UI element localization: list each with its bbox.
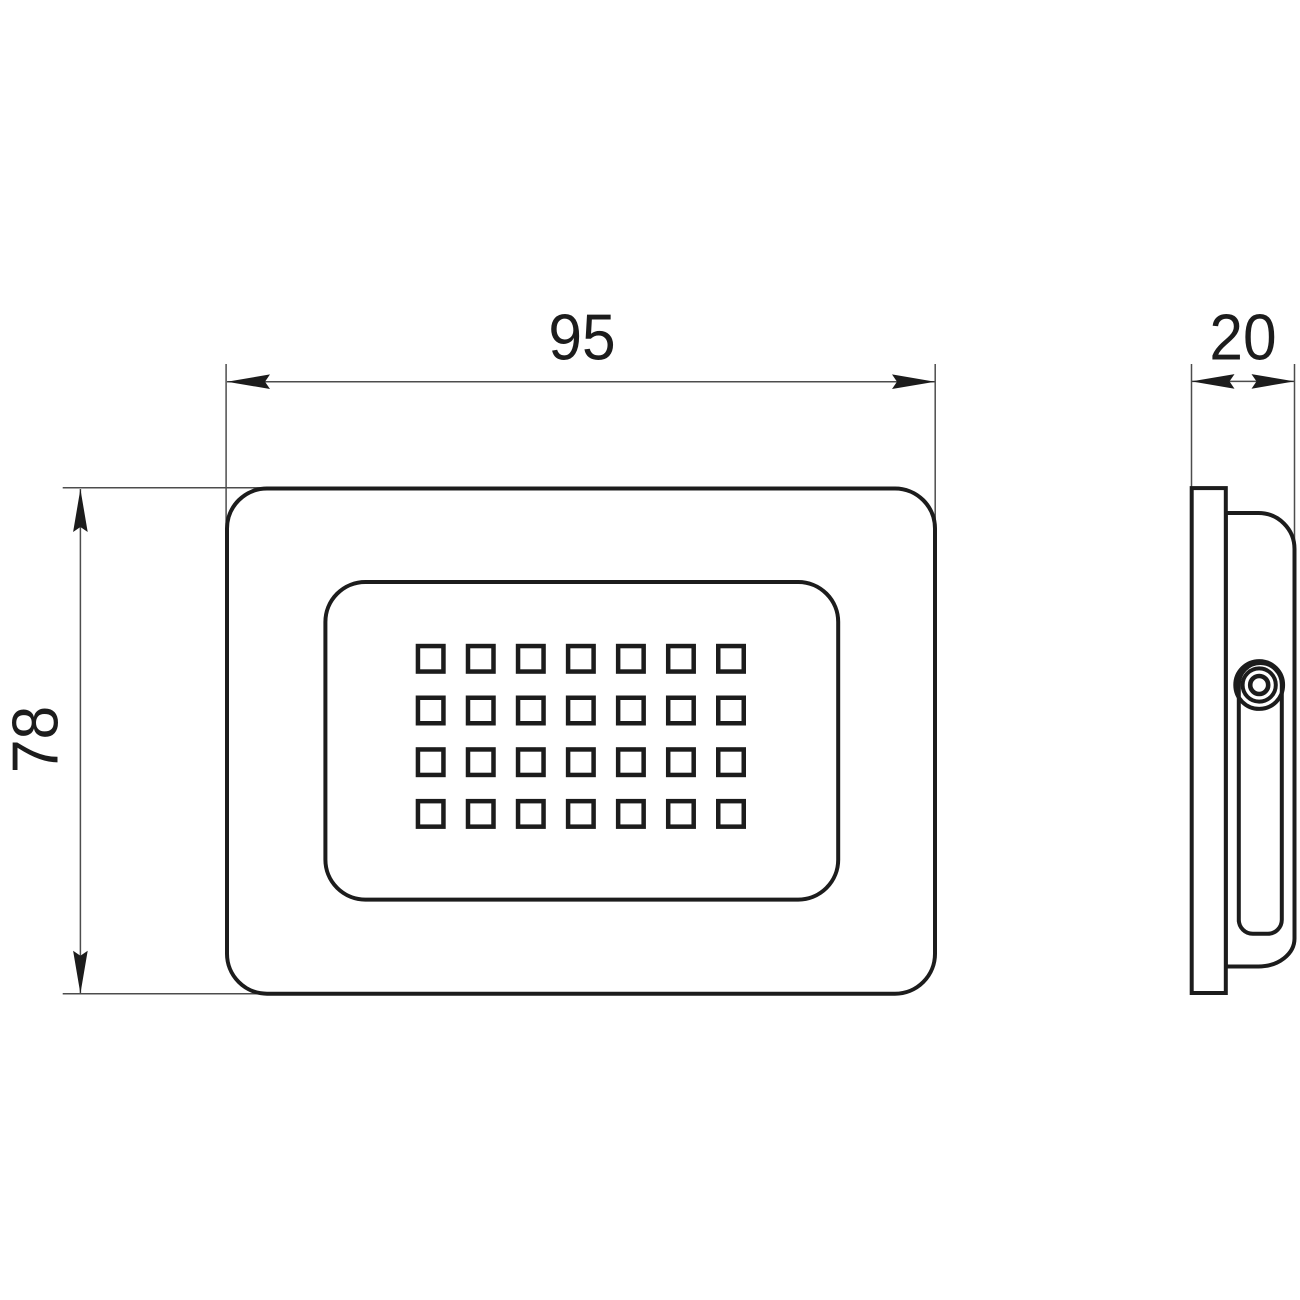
svg-text:20: 20 <box>1209 302 1276 374</box>
svg-text:78: 78 <box>0 706 72 773</box>
svg-text:95: 95 <box>548 302 615 374</box>
